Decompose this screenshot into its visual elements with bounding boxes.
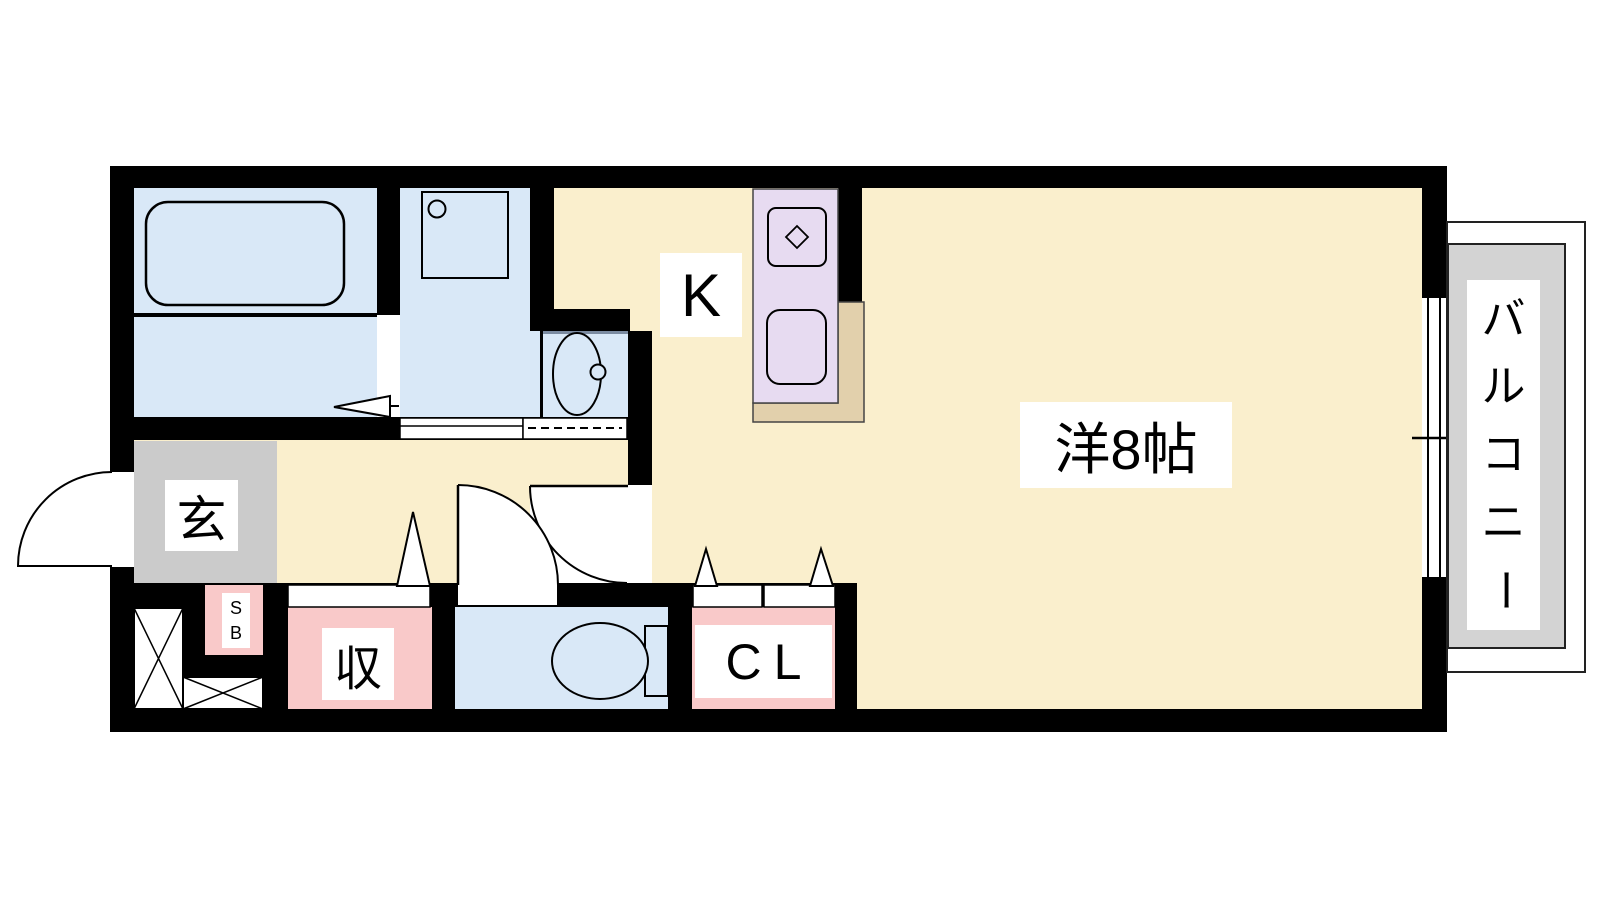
washroom-sliding-door: [400, 418, 523, 439]
hall-door-opening: [628, 485, 652, 583]
entrance-door-swing-area: [18, 472, 112, 566]
shoe-box-label-line1: S: [230, 596, 242, 620]
cl-closet-label: CL: [695, 625, 832, 698]
basin-nook-floor: [543, 331, 629, 417]
wall-kitchen-stub: [838, 188, 862, 302]
basin-counter-edge: [543, 331, 629, 334]
toilet-door-opening: [458, 585, 557, 605]
kitchen-label: K: [660, 253, 742, 337]
wall-hall-room-upper: [628, 331, 652, 485]
balcony-label: バ ル コ ニ ー: [1467, 280, 1540, 630]
shoe-box-label: S B: [222, 593, 250, 648]
balcony-label-char: ー: [1482, 568, 1526, 612]
storage-label: 収: [322, 628, 394, 700]
balcony-label-char: バ: [1482, 298, 1526, 342]
balcony-label-char: ニ: [1482, 501, 1526, 545]
western-room-label: 洋8帖: [1020, 402, 1232, 488]
storage-door-track: [288, 585, 430, 607]
bathroom-floor: [134, 188, 377, 417]
wall-cl-room: [835, 607, 857, 709]
floorplan-drawing: [0, 0, 1600, 900]
floorplan: 玄 S B 収 CL K 洋8帖 バ ル コ ニ ー: [0, 0, 1600, 900]
cl-door-track-left: [693, 585, 762, 607]
entrance-door-opening: [110, 472, 134, 567]
wall-above-basin: [530, 309, 630, 331]
shoe-box-label-line2: B: [230, 621, 242, 645]
basin-divider-line: [540, 331, 543, 417]
toilet-bowl-icon: [552, 623, 648, 699]
wall-washroom-kitchen: [530, 188, 554, 309]
cl-door-track-right: [764, 585, 835, 607]
wall-storage-toilet: [432, 607, 455, 709]
entrance-label: 玄: [165, 480, 238, 551]
basin-faucet-icon: [591, 365, 606, 380]
balcony-label-char: ル: [1482, 365, 1526, 409]
wall-toilet-cl: [668, 607, 692, 709]
bathtub-edge-line: [134, 313, 377, 317]
balcony-label-char: コ: [1482, 433, 1526, 477]
